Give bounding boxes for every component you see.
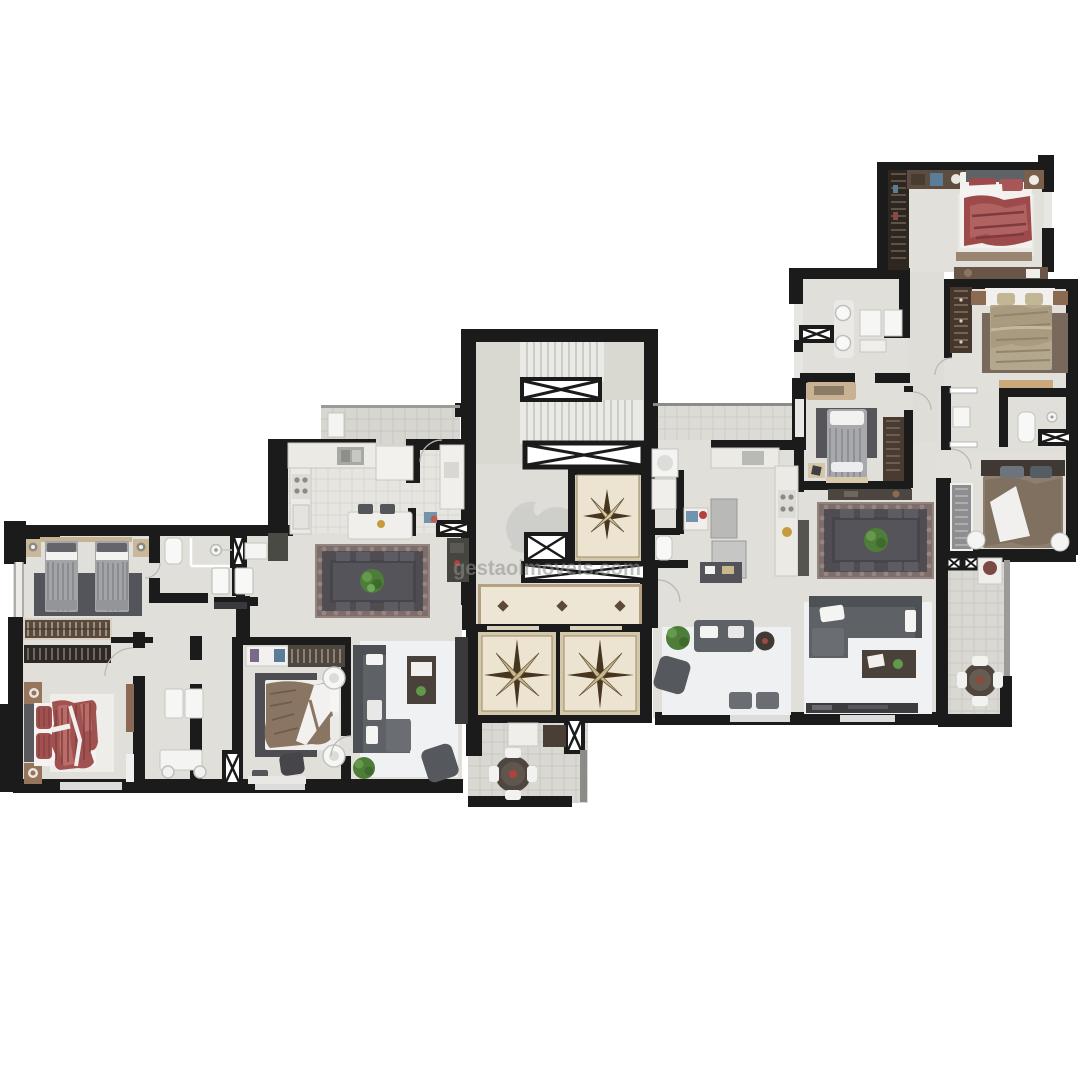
svg-text:gestaoimoveis.com: gestaoimoveis.com [453,556,641,580]
